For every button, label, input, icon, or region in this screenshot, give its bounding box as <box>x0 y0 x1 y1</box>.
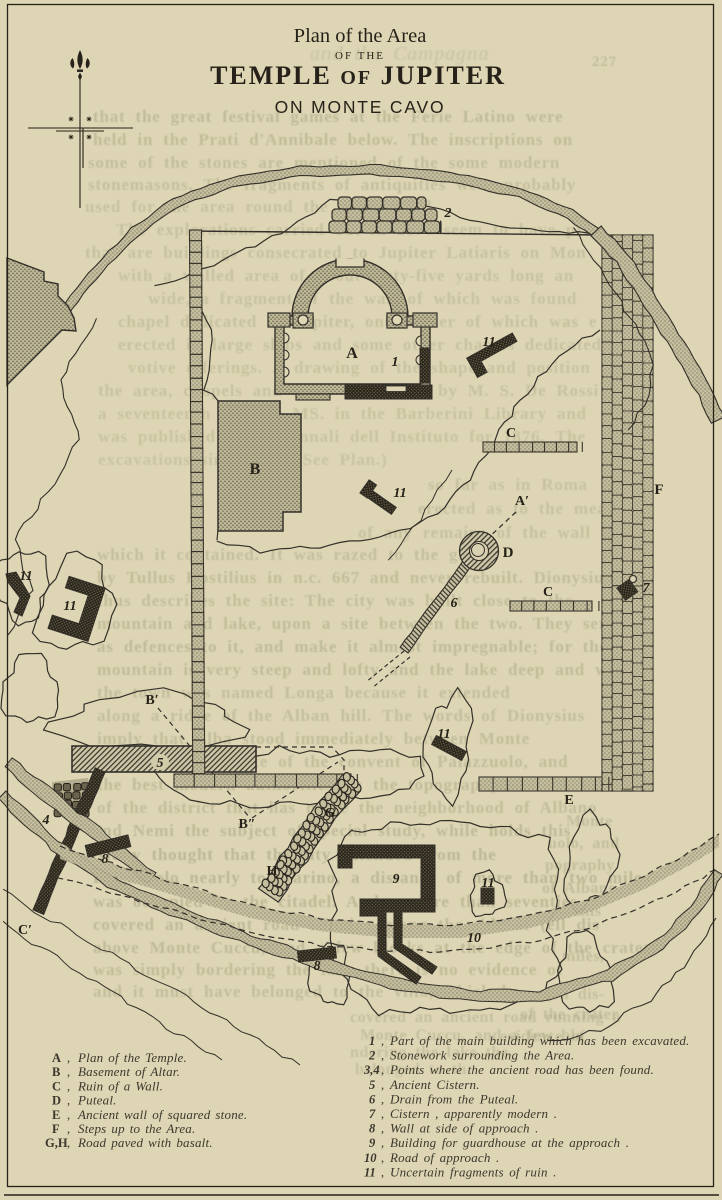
svg-text:11: 11 <box>437 727 450 742</box>
svg-text:G,H: G,H <box>45 1136 68 1150</box>
svg-text:,: , <box>67 1065 70 1079</box>
svg-text:the town was named Longa becau: the town was named Longa because it exte… <box>97 683 511 702</box>
svg-text:A′: A′ <box>515 494 529 509</box>
svg-text:,: , <box>381 1092 384 1106</box>
svg-text:A: A <box>346 345 358 362</box>
svg-text:G: G <box>325 806 336 821</box>
svg-text:Ancient Cistern.: Ancient Cistern. <box>389 1077 480 1092</box>
svg-text:E: E <box>52 1108 60 1122</box>
svg-text:mountain is very steep and lof: mountain is very steep and lofty and the… <box>97 660 632 679</box>
svg-text:B: B <box>250 461 261 478</box>
svg-text:Building for guardhouse at the: Building for guardhouse at the approach … <box>390 1135 629 1150</box>
svg-text:10: 10 <box>364 1151 377 1165</box>
svg-text:11: 11 <box>482 335 495 350</box>
svg-text:C: C <box>543 585 553 600</box>
svg-text:Road paved with basalt.: Road paved with basalt. <box>77 1135 213 1150</box>
svg-text:Puteal.: Puteal. <box>77 1093 117 1108</box>
svg-text:11: 11 <box>63 599 76 614</box>
svg-text:Points where the ancient road: Points where the ancient road has been f… <box>389 1062 654 1077</box>
svg-text:uolo, and: uolo, and <box>548 835 620 852</box>
svg-text:F: F <box>654 482 663 498</box>
svg-text:C: C <box>52 1079 61 1093</box>
svg-text:wide, a fragment of the wall o: wide, a fragment of the wall of which wa… <box>148 289 577 308</box>
svg-text:Stonework surrounding the Area: Stonework surrounding the Area. <box>390 1048 574 1063</box>
svg-text:Cistern , apparently modern .: Cistern , apparently modern . <box>390 1106 557 1121</box>
svg-text:,: , <box>381 1049 384 1063</box>
svg-text:,: , <box>67 1079 70 1093</box>
svg-text:8: 8 <box>102 852 109 867</box>
svg-text:11: 11 <box>19 569 32 584</box>
svg-text:11: 11 <box>393 486 406 501</box>
svg-text:Ancient wall of squared stone.: Ancient wall of squared stone. <box>77 1107 247 1122</box>
svg-text:7: 7 <box>369 1107 376 1121</box>
svg-text:4: 4 <box>42 813 50 828</box>
svg-text:5: 5 <box>369 1078 375 1092</box>
svg-text:by Tullus Hostilius in n.c. 66: by Tullus Hostilius in n.c. 667 and neve… <box>97 568 604 587</box>
svg-text:,: , <box>67 1051 70 1065</box>
svg-text:Monte: Monte <box>566 813 613 830</box>
svg-text:9: 9 <box>369 1136 376 1150</box>
svg-text:B″: B″ <box>238 817 255 832</box>
svg-text:7: 7 <box>643 581 651 596</box>
svg-text:Ruin of a Wall.: Ruin of a Wall. <box>77 1078 163 1093</box>
svg-text:covered an ancient road runnin: covered an ancient road running a <box>350 1009 621 1026</box>
svg-text:Plan of the Temple.: Plan of the Temple. <box>77 1050 187 1065</box>
svg-text:B: B <box>52 1065 60 1079</box>
svg-text:3,4: 3,4 <box>363 1063 380 1077</box>
svg-text:8: 8 <box>314 959 321 974</box>
svg-text:C: C <box>506 426 516 441</box>
svg-text:C′: C′ <box>18 923 32 938</box>
svg-text:as defences to it, and make it: as defences to it, and make it almost im… <box>97 637 608 656</box>
svg-text:5: 5 <box>157 756 164 771</box>
svg-text:10: 10 <box>467 931 481 946</box>
svg-text:H: H <box>267 864 278 879</box>
svg-text:E: E <box>564 793 573 808</box>
svg-text:11: 11 <box>481 876 494 891</box>
svg-text:pography: pography <box>545 857 615 874</box>
svg-text:2: 2 <box>368 1049 375 1063</box>
svg-text:,: , <box>381 1078 384 1092</box>
svg-text:6: 6 <box>369 1092 376 1106</box>
svg-text:A: A <box>52 1051 61 1065</box>
svg-text:B′: B′ <box>145 693 158 708</box>
svg-text:,: , <box>381 1136 384 1150</box>
svg-text:6: 6 <box>451 596 458 611</box>
svg-text:Road of approach .: Road of approach . <box>389 1150 500 1165</box>
svg-text:Basement of Altar.: Basement of Altar. <box>78 1064 180 1079</box>
svg-text:Wall at side of approach .: Wall at side of approach . <box>390 1121 539 1136</box>
svg-text:,: , <box>381 1107 384 1121</box>
svg-text:8: 8 <box>369 1122 376 1136</box>
svg-text:1: 1 <box>369 1034 375 1048</box>
svg-text:imply that Alba stood immediat: imply that Alba stood immediately betwee… <box>97 729 530 748</box>
svg-text:thus describes the site: The: thus describes the site: The city was bu… <box>97 591 573 610</box>
svg-text:ON MONTE CAVO: ON MONTE CAVO <box>275 97 446 117</box>
svg-text:Part of the main building whic: Part of the main building which has been… <box>389 1033 690 1048</box>
svg-text:,: , <box>381 1063 384 1077</box>
svg-text:F: F <box>52 1122 60 1136</box>
svg-text:,: , <box>67 1136 70 1150</box>
svg-text:11: 11 <box>364 1165 376 1179</box>
svg-text:Uncertain fragments of ruin .: Uncertain fragments of ruin . <box>390 1164 557 1179</box>
svg-text:so far as in Roma: so far as in Roma <box>428 475 588 494</box>
svg-text:227: 227 <box>592 54 617 70</box>
svg-text:,: , <box>67 1122 70 1136</box>
svg-text:,: , <box>67 1094 70 1108</box>
svg-text:,: , <box>381 1165 384 1179</box>
svg-text:Drain from the Puteal.: Drain from the Puteal. <box>389 1091 518 1106</box>
svg-text:,: , <box>67 1108 70 1122</box>
svg-text:D: D <box>52 1094 61 1108</box>
svg-text:Plan of the Area: Plan of the Area <box>294 25 427 47</box>
svg-text:2: 2 <box>444 206 452 221</box>
svg-text:,: , <box>381 1034 384 1048</box>
svg-text:held in the Prati d'Annibale b: held in the Prati d'Annibale below. The … <box>93 130 573 149</box>
svg-text:D: D <box>503 545 514 561</box>
svg-text:mountain and lake, upon a site: mountain and lake, upon a site between t… <box>97 614 616 633</box>
svg-text:,: , <box>381 1151 384 1165</box>
svg-text:9: 9 <box>393 872 400 887</box>
svg-text:,: , <box>381 1122 384 1136</box>
svg-text:which it contained. It was ra: which it contained. It was razed to the … <box>97 545 496 564</box>
svg-text:1: 1 <box>392 355 399 370</box>
svg-text:Steps up to the Area.: Steps up to the Area. <box>78 1121 195 1136</box>
